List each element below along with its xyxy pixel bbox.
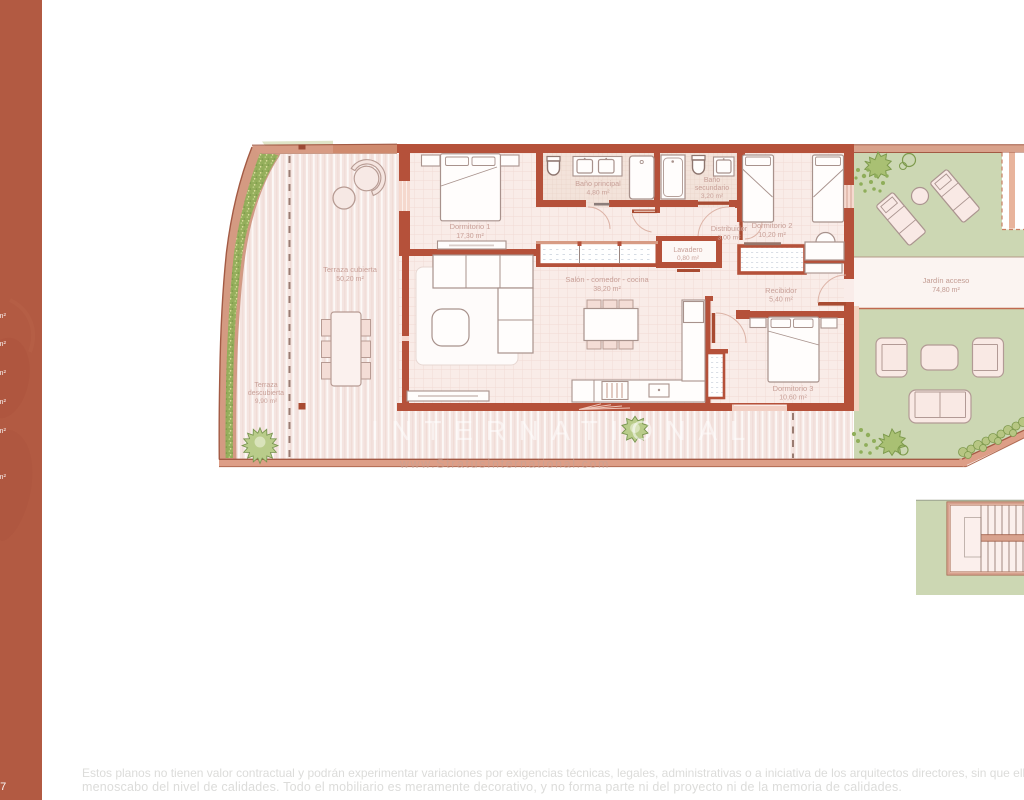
svg-text:Jardín acceso: Jardín acceso <box>923 276 970 285</box>
svg-text:descubierta: descubierta <box>248 390 284 397</box>
svg-text:secundario: secundario <box>695 185 729 192</box>
svg-text:0 m²: 0 m² <box>0 426 7 435</box>
svg-text:Baño: Baño <box>704 177 720 184</box>
svg-text:0 m²: 0 m² <box>0 472 7 481</box>
svg-text:0 m²: 0 m² <box>0 339 7 348</box>
svg-text:10,60 m²: 10,60 m² <box>779 395 807 402</box>
svg-text:menoscabo del nivel de calidad: menoscabo del nivel de calidades. Todo e… <box>82 780 902 794</box>
svg-text:Dormitorio 1: Dormitorio 1 <box>450 222 491 231</box>
svg-text:17,30 m²: 17,30 m² <box>456 233 484 240</box>
svg-text:0 m²: 0 m² <box>0 311 7 320</box>
svg-text:3,20 m²: 3,20 m² <box>701 193 724 200</box>
svg-text:3,00 m²: 3,00 m² <box>717 235 741 242</box>
svg-text:Dormitorio 2: Dormitorio 2 <box>752 221 793 230</box>
svg-text:Salón - comedor - cocina: Salón - comedor - cocina <box>565 275 649 284</box>
svg-text:38,20 m²: 38,20 m² <box>593 286 621 293</box>
svg-text:10,20 m²: 10,20 m² <box>758 232 786 239</box>
svg-text:0,80 m²: 0,80 m² <box>677 255 700 262</box>
svg-text:Distribuidor: Distribuidor <box>711 224 748 233</box>
svg-text:4,80 m²: 4,80 m² <box>586 190 610 197</box>
svg-text:INTERNATIONAL: INTERNATIONAL <box>371 415 758 446</box>
svg-text:Estos planos no tienen valor c: Estos planos no tienen valor contractual… <box>82 766 1024 780</box>
svg-text:Baño principal: Baño principal <box>575 179 621 188</box>
svg-text:74,80 m²: 74,80 m² <box>932 287 960 294</box>
svg-text:Terraza: Terraza <box>254 382 277 389</box>
svg-text:Terraza cubierta: Terraza cubierta <box>323 265 378 274</box>
svg-text:0 m²: 0 m² <box>0 368 7 377</box>
svg-text:50,20 m²: 50,20 m² <box>336 276 364 283</box>
svg-text:07: 07 <box>0 781 6 793</box>
svg-text:9,90 m²: 9,90 m² <box>255 398 278 405</box>
svg-text:Recibidor: Recibidor <box>765 286 797 295</box>
svg-text:Dormitorio 3: Dormitorio 3 <box>773 384 814 393</box>
svg-text:5,40 m²: 5,40 m² <box>769 297 793 304</box>
svg-text:Lavadero: Lavadero <box>673 247 702 254</box>
svg-text:www.StratusInternational.com: www.StratusInternational.com <box>399 457 610 471</box>
svg-text:0 m²: 0 m² <box>0 397 7 406</box>
